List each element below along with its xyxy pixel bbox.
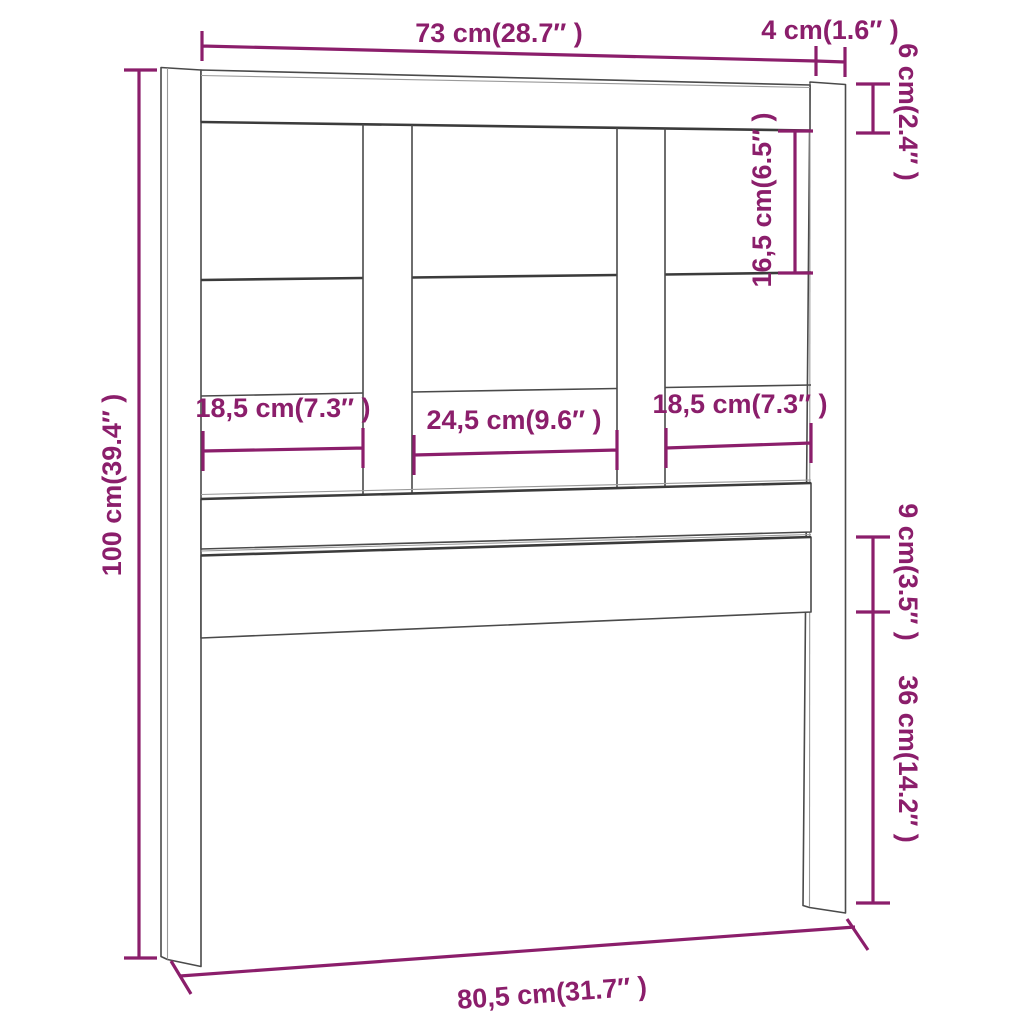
dim-post-width: 4 cm(1.6″ ) bbox=[761, 15, 899, 77]
headboard-drawing bbox=[161, 68, 846, 967]
dim-leg-height: 36 cm(14.2″ ) bbox=[856, 612, 923, 903]
dim-leg-height-label: 36 cm(14.2″ ) bbox=[893, 675, 923, 843]
headboard-dimension-diagram: 73 cm(28.7″ ) 4 cm(1.6″ ) 6 cm(2.4″ ) 16… bbox=[0, 0, 1024, 1024]
vertical-slat-2 bbox=[617, 128, 665, 488]
dim-left-opening-width: 18,5 cm(7.3″ ) bbox=[195, 393, 370, 471]
lower-bottom-rail bbox=[201, 535, 811, 639]
dim-lower-rail-height: 9 cm(3.5″ ) bbox=[856, 503, 923, 641]
dim-total-height-label: 100 cm(39.4″ ) bbox=[97, 394, 127, 577]
top-rail bbox=[201, 70, 810, 131]
dim-bottom-width-label: 80,5 cm(31.7″ ) bbox=[456, 971, 648, 1015]
diagram-canvas: 73 cm(28.7″ ) 4 cm(1.6″ ) 6 cm(2.4″ ) 16… bbox=[0, 0, 1024, 1024]
left-post bbox=[161, 68, 201, 967]
dim-upper-opening-height-label: 16,5 cm(6.5″ ) bbox=[747, 112, 777, 287]
dim-top-inner-width-label: 73 cm(28.7″ ) bbox=[415, 18, 583, 48]
dim-left-opening-width-label: 18,5 cm(7.3″ ) bbox=[195, 393, 370, 423]
dim-middle-opening-width-label: 24,5 cm(9.6″ ) bbox=[426, 405, 601, 435]
dim-upper-opening-height: 16,5 cm(6.5″ ) bbox=[747, 112, 813, 287]
dim-top-rail-height-label: 6 cm(2.4″ ) bbox=[893, 43, 923, 181]
vertical-slat-1 bbox=[363, 124, 412, 495]
dim-post-width-label: 4 cm(1.6″ ) bbox=[761, 15, 899, 45]
dim-total-height: 100 cm(39.4″ ) bbox=[97, 70, 157, 958]
dim-right-opening-width-label: 18,5 cm(7.3″ ) bbox=[652, 389, 827, 419]
middle-rail bbox=[201, 273, 811, 397]
dim-top-inner-width: 73 cm(28.7″ ) bbox=[202, 18, 816, 76]
dim-middle-opening-width: 24,5 cm(9.6″ ) bbox=[414, 405, 617, 475]
dim-lower-rail-height-label: 9 cm(3.5″ ) bbox=[893, 503, 923, 641]
dim-top-rail-height: 6 cm(2.4″ ) bbox=[856, 43, 923, 181]
dim-right-opening-width: 18,5 cm(7.3″ ) bbox=[652, 389, 827, 468]
dim-bottom-width: 80,5 cm(31.7″ ) bbox=[171, 919, 868, 1015]
